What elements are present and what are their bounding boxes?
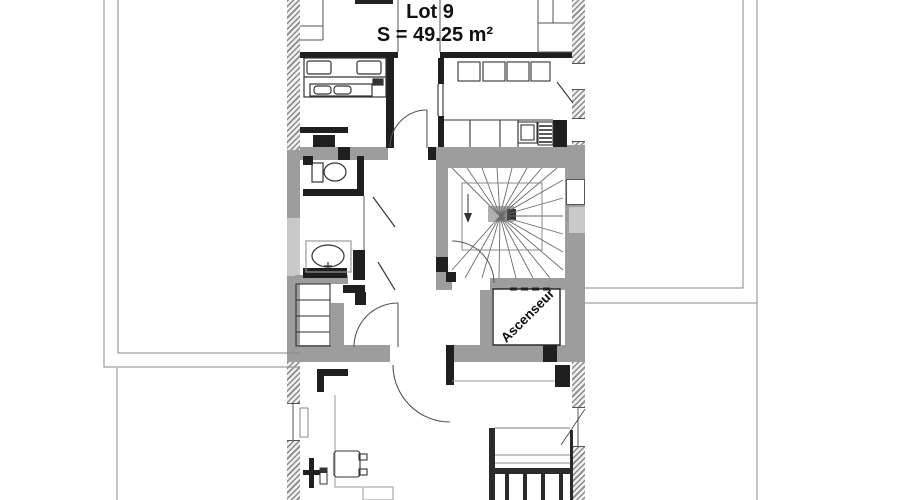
rug-corner-box bbox=[363, 487, 393, 500]
washbasin bbox=[312, 245, 344, 267]
right-core-wall bbox=[565, 145, 585, 345]
chair-armrest-b bbox=[359, 469, 367, 475]
rug-outline bbox=[335, 395, 362, 487]
kitchen-right-window-b bbox=[572, 118, 585, 142]
living-right-window bbox=[572, 407, 585, 447]
bedroom-duct-block bbox=[313, 135, 335, 147]
kitchen-cabinet-3 bbox=[507, 62, 529, 81]
railing-bar bbox=[523, 474, 527, 500]
bed2-lines bbox=[495, 455, 570, 463]
railing-bar bbox=[559, 474, 563, 500]
kitchen-sink bbox=[518, 122, 537, 143]
toilet-tank bbox=[312, 163, 323, 182]
staircase bbox=[452, 168, 563, 283]
wc-bottom-wall bbox=[303, 189, 364, 196]
top-right-closet-outline bbox=[538, 0, 572, 52]
railing bbox=[489, 428, 573, 500]
living-door-arc bbox=[393, 365, 450, 422]
kitchen-cabinet-4 bbox=[531, 62, 550, 81]
kitchen-cabinet-2 bbox=[483, 62, 505, 81]
living-door-opening bbox=[390, 345, 446, 362]
stair-newel-cap bbox=[507, 209, 516, 220]
bed-frame bbox=[304, 58, 386, 97]
bathroom-right-wall bbox=[353, 250, 365, 280]
toilet-bowl bbox=[324, 163, 346, 181]
bed-pillow-left bbox=[307, 61, 331, 74]
kitchen-right-window-a bbox=[572, 63, 585, 90]
stairwell-window bbox=[566, 179, 585, 205]
area-label: S = 49.25 m² bbox=[345, 23, 525, 48]
stair-direction-arrow bbox=[464, 213, 472, 223]
stair-door-jamb bbox=[446, 272, 456, 282]
plan-linework bbox=[0, 0, 900, 500]
left-exterior-wall-lower-b bbox=[287, 441, 300, 500]
bathroom-bottom-wall bbox=[303, 268, 347, 278]
chair bbox=[334, 451, 360, 477]
closet-shelving bbox=[296, 284, 330, 346]
living-band-jamb bbox=[543, 345, 557, 362]
railing-rail bbox=[495, 468, 573, 474]
left-terrace-inner-edge bbox=[118, 0, 300, 353]
lot-label: Lot 9 bbox=[370, 0, 490, 24]
stair-treads bbox=[452, 168, 563, 278]
kitchen-counter-end-wall bbox=[553, 120, 567, 147]
kitchen-cabinet-1 bbox=[458, 62, 480, 81]
small-stand-top bbox=[320, 468, 327, 473]
living-left-wall-stub-b bbox=[317, 369, 324, 392]
kitchen-left-wall-b bbox=[438, 116, 444, 147]
bedroom-door-arc bbox=[390, 110, 427, 147]
bed-bench bbox=[310, 84, 372, 96]
kitchen-window-casement bbox=[557, 82, 573, 103]
living-right-wall-stub bbox=[555, 365, 570, 387]
stove-grill-lines bbox=[539, 126, 552, 142]
right-exterior-wall-top-b bbox=[572, 90, 585, 118]
kitchen-top-wall bbox=[440, 52, 572, 58]
small-stand bbox=[320, 468, 327, 484]
chair-armrest-a bbox=[359, 454, 367, 460]
desk-chair bbox=[334, 451, 367, 477]
bathroom-left-duct bbox=[287, 218, 300, 276]
bedroom-bottom-wall bbox=[300, 127, 348, 133]
band-jamb-left bbox=[338, 147, 350, 160]
right-core-duct bbox=[569, 207, 585, 233]
right-terrace-outer-edge bbox=[585, 0, 757, 303]
living-room-items bbox=[293, 381, 585, 500]
bed bbox=[304, 58, 386, 97]
railing-bar bbox=[505, 474, 509, 500]
closet-shelf-lines bbox=[296, 300, 330, 332]
floor-plan-page: Lot 9 S = 49.25 m² Ascenseur bbox=[0, 0, 900, 500]
bedroom-door-opening bbox=[388, 147, 428, 160]
floor-lamp-pole bbox=[309, 458, 314, 488]
stove bbox=[538, 122, 553, 145]
bed-pillow-right bbox=[357, 61, 381, 74]
hall-door-arc bbox=[354, 303, 398, 347]
closet-black-stub-b bbox=[355, 292, 366, 305]
bathroom-door-leaf bbox=[373, 197, 395, 227]
living-door-jamb bbox=[446, 345, 454, 385]
stairwell-wall-stub bbox=[436, 257, 448, 272]
wc-door-leaf bbox=[378, 262, 395, 290]
terrace-lines bbox=[104, 0, 757, 500]
stairwell-top-wall bbox=[436, 160, 585, 168]
right-exterior-wall-lower-b bbox=[572, 447, 585, 500]
closet-right-wall bbox=[331, 303, 344, 347]
kitchen-left-wall-a bbox=[438, 58, 444, 84]
living-left-window bbox=[287, 403, 300, 441]
bed-cushion-a bbox=[314, 86, 331, 94]
bedroom-top-wall bbox=[300, 52, 398, 58]
left-exterior-wall-lower-a bbox=[287, 362, 300, 403]
kitchen-counter bbox=[444, 120, 553, 147]
kitchen-sink-basin bbox=[521, 125, 534, 140]
bedroom-door-jamb bbox=[428, 147, 436, 160]
left-terrace-outer-edge bbox=[104, 0, 300, 367]
kitchen-pass-through bbox=[438, 84, 443, 116]
stair-door-opening bbox=[452, 278, 490, 290]
railing-left-post bbox=[489, 428, 495, 500]
left-wall-mid-lower bbox=[287, 283, 300, 362]
stair-door-arc bbox=[452, 241, 494, 283]
right-exterior-wall-top-a bbox=[572, 0, 585, 63]
wc-wall-stub bbox=[303, 156, 313, 165]
top-left-closet-outline bbox=[300, 0, 323, 40]
left-exterior-wall-upper bbox=[287, 0, 300, 150]
closet-outline bbox=[296, 284, 330, 346]
railing-bar bbox=[541, 474, 545, 500]
right-terrace-inner-edge bbox=[585, 0, 743, 288]
bed-dark-detail bbox=[373, 79, 383, 85]
bed-cushion-b bbox=[334, 86, 351, 94]
left-window-sill bbox=[300, 408, 308, 437]
bedroom-right-wall bbox=[386, 58, 394, 148]
